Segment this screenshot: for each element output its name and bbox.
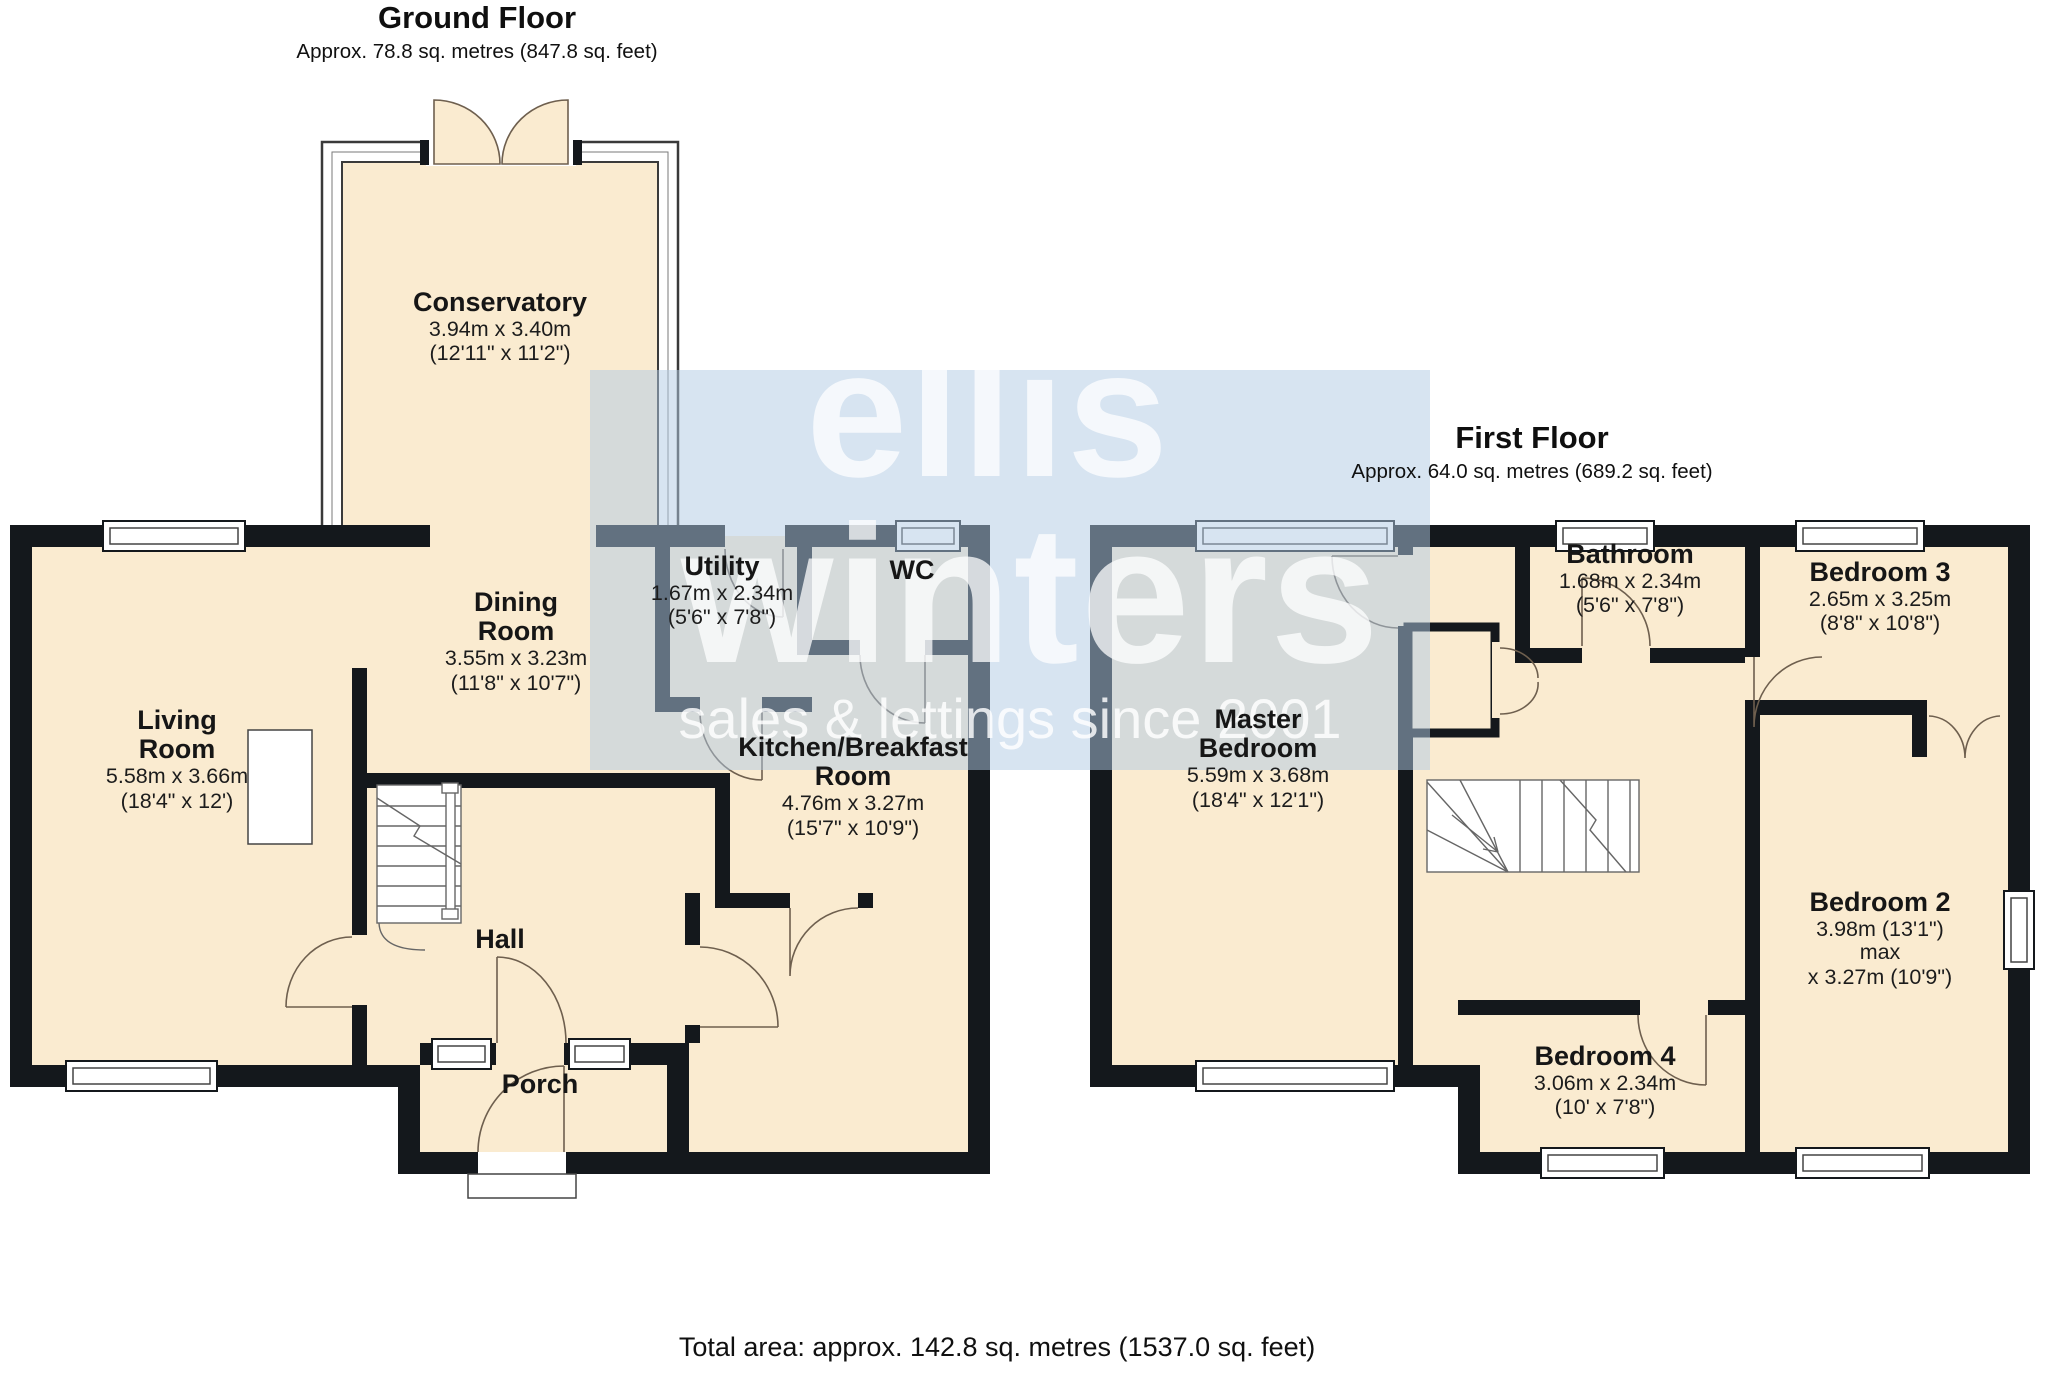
room-label-hall: Hall xyxy=(475,925,525,954)
room-label-bedroom-4: Bedroom 4 3.06m x 2.34m (10' x 7'8") xyxy=(1534,1042,1676,1120)
french-door-right xyxy=(502,100,568,164)
floorplan-page: ellis winters sales & lettings since 200… xyxy=(0,0,2048,1373)
room-label-conservatory: Conservatory 3.94m x 3.40m (12'11" x 11'… xyxy=(413,288,587,366)
room-label-dining-room: Dining Room 3.55m x 3.23m (11'8" x 10'7"… xyxy=(445,588,587,695)
room-label-living-room: Living Room 5.58m x 3.66m (18'4" x 12') xyxy=(106,706,248,813)
total-area-text: Total area: approx. 142.8 sq. metres (15… xyxy=(679,1332,1315,1363)
floorplan-drawing xyxy=(0,0,2048,1373)
room-label-master-bedroom: Master Bedroom 5.59m x 3.68m (18'4" x 12… xyxy=(1173,705,1343,812)
room-label-utility: Utility 1.67m x 2.34m (5'6" x 7'8") xyxy=(651,552,793,630)
first-floor-title: First Floor Approx. 64.0 sq. metres (689… xyxy=(1351,420,1712,484)
room-label-kitchen: Kitchen/Breakfast Room 4.76m x 3.27m (15… xyxy=(717,733,989,840)
room-label-wc: WC xyxy=(890,556,935,585)
chimney-breast xyxy=(248,730,312,844)
first-floor-stairs xyxy=(1427,780,1639,872)
room-label-bedroom-2: Bedroom 2 3.98m (13'1") max x 3.27m (10'… xyxy=(1796,888,1964,989)
ground-floor-title: Ground Floor Approx. 78.8 sq. metres (84… xyxy=(296,0,657,64)
porch-threshold xyxy=(468,1174,576,1198)
room-label-bedroom-3: Bedroom 3 2.65m x 3.25m (8'8" x 10'8") xyxy=(1809,558,1951,636)
french-door-left xyxy=(434,100,500,164)
room-label-porch: Porch xyxy=(502,1070,579,1099)
room-label-bathroom: Bathroom 1.68m x 2.34m (5'6" x 7'8") xyxy=(1559,540,1701,618)
